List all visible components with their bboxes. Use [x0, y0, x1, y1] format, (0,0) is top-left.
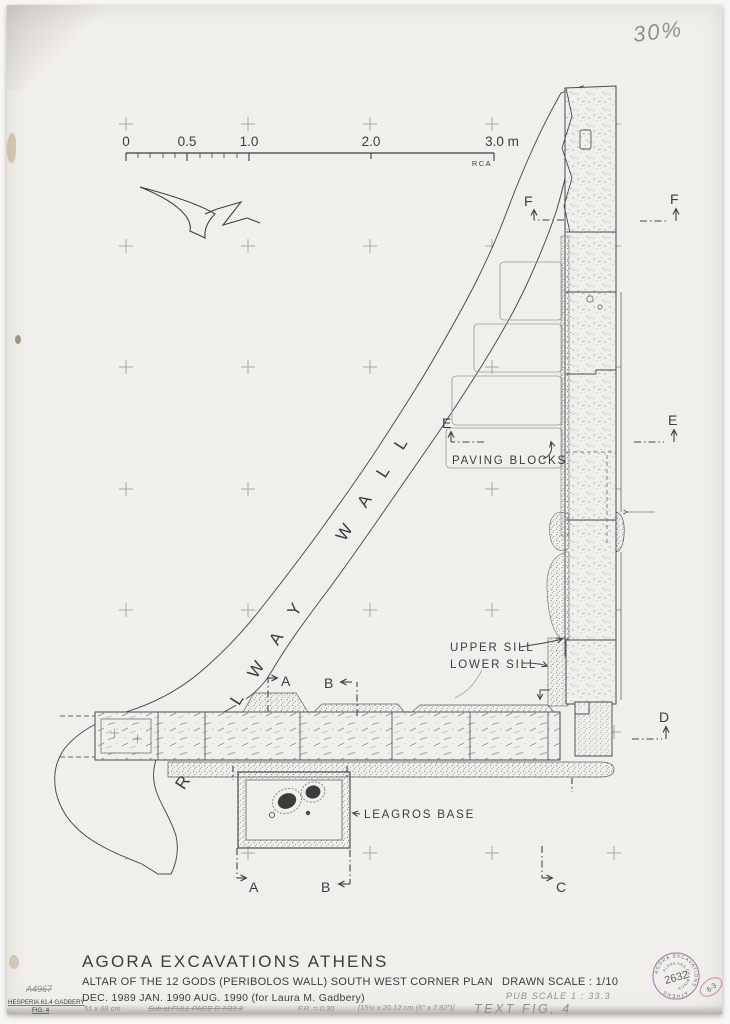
leagros-base: [238, 772, 350, 848]
reference-note: HESPERIA 61.4 GADBERY: [8, 999, 85, 1006]
scale-bar-labels: 0 0.5 1.0 2.0 3.0 m RCA: [122, 134, 519, 168]
upper-sill-label: UPPER SILL: [450, 642, 534, 654]
pub-scale-note: PUB SCALE 1 : 33.3: [506, 991, 611, 1001]
drawn-scale: DRAWN SCALE : 1/10: [502, 976, 618, 988]
pencil-size: 51 x 68 cm: [84, 1004, 121, 1013]
scale-10: 1.0: [240, 134, 259, 149]
scale-30m: 3.0 m: [485, 134, 519, 149]
section-c-bottom: C: [556, 879, 566, 895]
pencil-fr: F.R. = 0.30: [298, 1004, 335, 1013]
scanned-plan-sheet: RAILWAY WALL: [0, 0, 730, 1024]
section-f-left: F: [524, 193, 533, 209]
title-line2: ALTAR OF THE 12 GODS (PERIBOLOS WALL) SO…: [82, 976, 493, 988]
scale-20: 2.0: [362, 134, 381, 149]
archive-stamp: AGORA EXCAVATIONS · ATHENS · PLANS AND D…: [653, 953, 725, 1000]
lower-sill-label: LOWER SILL: [450, 659, 537, 671]
pencil-bracket: [15¼ x 20.12 cm (6" x 7.92")]: [357, 1003, 456, 1012]
section-d-right: D: [659, 709, 669, 725]
north-arrow-icon: [140, 187, 260, 238]
reference-fig: FIG. 4: [32, 1007, 50, 1014]
section-a-bottom: A: [249, 879, 259, 895]
scale-credit: RCA: [472, 159, 492, 168]
scale-0: 0: [122, 134, 130, 149]
section-b-top: B: [324, 675, 333, 691]
title-line3: DEC. 1989 JAN. 1990 AUG. 1990 (for Laura…: [82, 992, 365, 1004]
section-a-top: A: [281, 673, 291, 689]
leagros-base-label: LEAGROS BASE: [364, 809, 475, 821]
pencil-percent-note: 30%: [632, 16, 685, 47]
section-f-right: F: [670, 191, 679, 207]
scale-05: 0.5: [178, 134, 197, 149]
scale-bar: [126, 153, 494, 161]
section-e-right: E: [668, 412, 677, 428]
plan-drawing-svg: RAILWAY WALL: [0, 0, 730, 1024]
pencil-annotations: 51 x 68 cm Sub at FULL PAGE R 7/33.3 F.R…: [84, 1002, 572, 1016]
title-line1: AGORA EXCAVATIONS ATHENS: [82, 952, 389, 971]
section-b-bottom: B: [321, 879, 330, 895]
title-block: AGORA EXCAVATIONS ATHENS ALTAR OF THE 12…: [82, 952, 618, 1004]
pencil-struck: Sub at FULL PAGE R 7/33.3: [148, 1004, 244, 1013]
section-e-left: E: [442, 415, 451, 431]
paving-blocks-label: PAVING BLOCKS: [452, 455, 567, 467]
text-fig-note: TEXT FIG, 4: [474, 1002, 572, 1016]
margin-notes: A4967 HESPERIA 61.4 GADBERY FIG. 4: [8, 984, 85, 1014]
negative-number: A4967: [25, 984, 53, 994]
